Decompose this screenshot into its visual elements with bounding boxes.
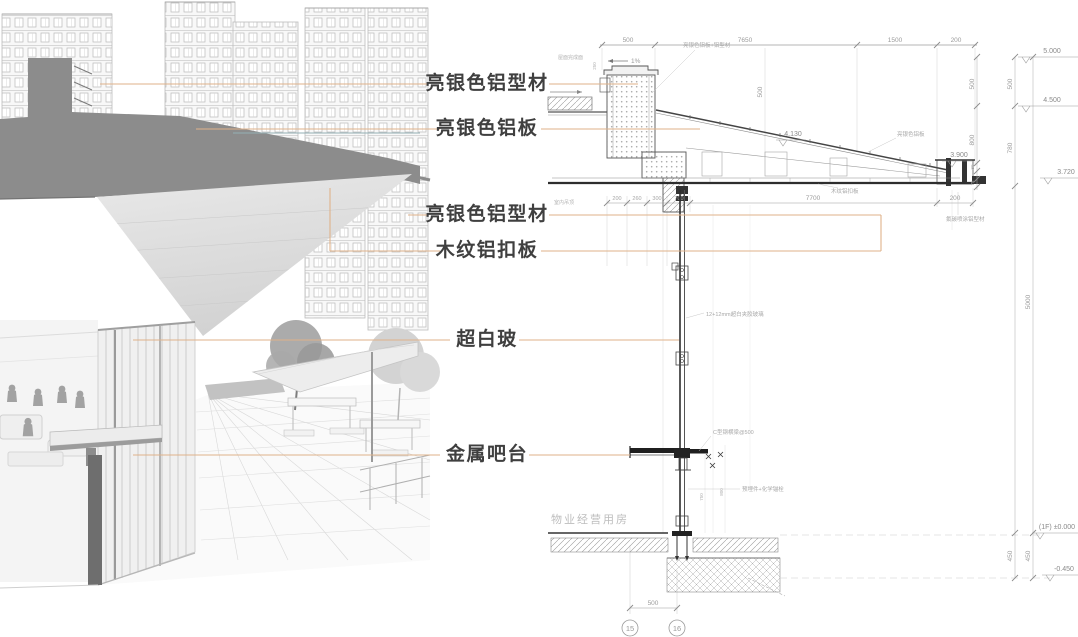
annotation-text: 屋面完成面 — [558, 54, 583, 61]
callout-label-wood-grain-panel: 木纹铝扣板 — [436, 239, 539, 263]
callout-label-ultra-white-glass: 超白玻 — [456, 328, 518, 352]
dim-text: 750 — [699, 493, 704, 501]
level-text: 5.000 — [1043, 48, 1061, 55]
glass-mullion: 12+12mm超白夹胶玻璃 — [663, 190, 764, 533]
rendering-figure — [0, 2, 440, 588]
dim-text: 200 — [950, 195, 961, 202]
dim-text: 500 — [623, 37, 634, 44]
edge-gutter-detail: 200 氟碳喷涂铝型材 — [934, 158, 986, 223]
annotation-text: 预埋件+化学锚栓 — [742, 485, 784, 493]
dim-text: 780 — [1007, 142, 1014, 153]
annotation-text: 氟碳喷涂铝型材 — [946, 215, 985, 223]
dim-text: 700 — [674, 196, 683, 202]
grid-bubble-label: 15 — [626, 624, 634, 633]
dim-text: 75 — [970, 180, 975, 186]
level-text: 3.900 — [950, 152, 968, 159]
dim-text: 200 — [951, 37, 962, 44]
floor-foundation — [548, 531, 1050, 596]
dim-text: 250 — [592, 62, 597, 70]
dim-text: 300 — [652, 196, 661, 202]
annotation-text: C型钢横梁@500 — [713, 428, 754, 436]
level-text: 4.130 — [784, 131, 802, 138]
dim-text: 1500 — [888, 37, 903, 44]
slope-text: 1% — [631, 58, 641, 65]
grid-bubble-label: 16 — [673, 624, 681, 633]
glass-curtain-wall — [98, 322, 195, 585]
dim-text: 500 — [1007, 78, 1014, 89]
section-drawing: 500 7650 1500 200 1% 250 屋面完成面 — [548, 37, 1078, 636]
dim-text: 450 — [1007, 550, 1014, 561]
annotation-text: 亮银色铝板 — [897, 130, 925, 138]
top-dimension-line: 500 7650 1500 200 — [599, 37, 978, 48]
dim-text: 500 — [757, 86, 764, 97]
dim-text: 800 — [969, 134, 976, 145]
interior-space — [0, 320, 98, 582]
level-marks: 5.000 4.500 3.720 4.130 3.900 (1F) ±0.00… — [776, 48, 1078, 581]
dim-text: 500 — [969, 78, 976, 89]
dim-text: 500 — [648, 600, 659, 607]
under-soffit-dims: 200 260 300 700 7700 — [604, 195, 937, 206]
parapet-detail: 1% 250 — [592, 58, 686, 212]
level-text: 4.500 — [1043, 97, 1061, 104]
dim-text: 7700 — [806, 195, 821, 202]
dim-text: 80 — [970, 164, 975, 170]
dim-text: 260 — [632, 196, 641, 202]
callout-label-aluminum-profile-1: 亮银色铝型材 — [425, 72, 548, 96]
annotation-text: 木纹铝扣板 — [831, 187, 859, 195]
wall-column — [88, 455, 102, 585]
dim-text: 200 — [612, 196, 621, 202]
annotation-text: 室内吊顶 — [554, 199, 574, 206]
counter-detail: C型钢横梁@500 预埋件+化学锚栓 750 800 — [630, 428, 784, 501]
callout-label-aluminum-panel: 亮银色铝板 — [436, 117, 539, 141]
annotation-text: 12+12mm超白夹胶玻璃 — [706, 310, 764, 318]
callout-label-aluminum-profile-2: 亮银色铝型材 — [425, 203, 548, 227]
watermark-text: 物业经营用房 — [551, 512, 629, 526]
annotation-text: 亮银色铝板+铝型材 — [683, 41, 731, 49]
level-text: -0.450 — [1054, 566, 1074, 573]
level-text: 3.720 — [1057, 169, 1075, 176]
level-text: (1F) ±0.000 — [1039, 524, 1075, 531]
dim-text: 7650 — [738, 37, 753, 44]
dim-text: 800 — [719, 488, 724, 496]
callout-label-metal-bar-counter: 金属吧台 — [446, 443, 528, 467]
dim-text: 5000 — [1025, 294, 1032, 309]
grid-bubbles: 500 15 16 — [622, 600, 685, 636]
dimension-chains: 500 800 80 75 500 780 450 5000 450 — [969, 54, 1036, 581]
ground-line — [0, 585, 98, 588]
dim-text: 450 — [1025, 550, 1032, 561]
